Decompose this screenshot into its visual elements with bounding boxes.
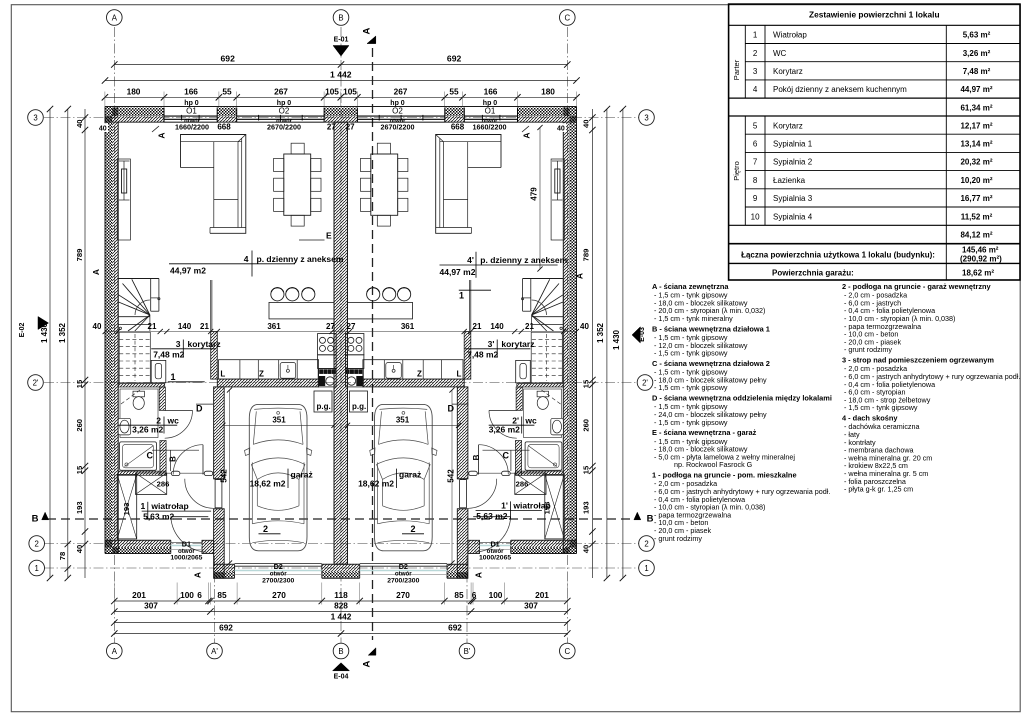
svg-text:O1: O1 [485, 106, 496, 115]
svg-text:garaż: garaż [291, 469, 313, 479]
svg-text:260: 260 [75, 419, 84, 432]
svg-text:1000/2065: 1000/2065 [479, 555, 511, 562]
svg-text:Piętro: Piętro [732, 161, 741, 181]
svg-text:61,34 m²: 61,34 m² [960, 103, 992, 112]
svg-text:5: 5 [753, 121, 758, 130]
svg-text:2': 2' [33, 378, 39, 387]
svg-text:166: 166 [484, 87, 498, 97]
svg-text:1000/2065: 1000/2065 [170, 555, 202, 562]
svg-text:40: 40 [99, 125, 107, 132]
svg-text:Z: Z [259, 369, 264, 378]
svg-text:201: 201 [132, 590, 146, 600]
svg-text:6: 6 [197, 590, 202, 600]
svg-text:4': 4' [467, 255, 474, 265]
svg-text:40: 40 [75, 545, 84, 553]
svg-text:B': B' [464, 647, 471, 656]
svg-text:E-01: E-01 [334, 37, 349, 44]
svg-text:2670/2200: 2670/2200 [381, 123, 415, 132]
svg-text:1: 1 [459, 291, 464, 301]
svg-text:E: E [326, 231, 332, 241]
svg-text:85: 85 [217, 590, 227, 600]
svg-text:201: 201 [535, 590, 549, 600]
svg-text:O2: O2 [279, 106, 290, 115]
svg-text:267: 267 [394, 87, 408, 97]
svg-text:1 442: 1 442 [330, 70, 352, 80]
svg-text:789: 789 [582, 249, 591, 262]
svg-text:44,97 m²: 44,97 m² [960, 85, 992, 94]
svg-text:korytarz: korytarz [188, 339, 221, 349]
svg-text:1: 1 [644, 564, 648, 573]
svg-text:789: 789 [75, 249, 84, 262]
svg-text:85: 85 [454, 590, 464, 600]
svg-text:3,26 m2: 3,26 m2 [489, 425, 520, 435]
svg-text:692: 692 [221, 54, 236, 64]
svg-text:193: 193 [543, 502, 552, 515]
svg-text:wc: wc [167, 415, 180, 425]
svg-text:- grunt rodzimy: - grunt rodzimy [654, 534, 702, 543]
svg-text:193: 193 [122, 503, 131, 516]
svg-text:otwór: otwór [395, 571, 412, 578]
svg-text:B: B [647, 514, 654, 525]
svg-text:193: 193 [582, 501, 591, 514]
svg-text:Sypialnia 2: Sypialnia 2 [773, 158, 813, 167]
svg-text:Sypialnia 1: Sypialnia 1 [773, 140, 813, 149]
svg-text:10: 10 [751, 212, 760, 221]
svg-text:2670/2200: 2670/2200 [267, 123, 301, 132]
svg-text:27: 27 [346, 123, 355, 132]
svg-text:L: L [220, 369, 225, 378]
svg-text:WC: WC [773, 49, 787, 58]
svg-text:Wiatrołap: Wiatrołap [773, 31, 807, 40]
svg-text:wc: wc [524, 415, 537, 425]
svg-text:3: 3 [644, 113, 648, 122]
svg-text:12,17 m²: 12,17 m² [960, 121, 992, 130]
svg-text:1: 1 [170, 372, 175, 382]
svg-text:15: 15 [75, 465, 84, 474]
svg-text:542: 542 [220, 469, 229, 483]
svg-text:2700/2300: 2700/2300 [262, 578, 294, 585]
svg-text:10,20 m²: 10,20 m² [960, 176, 992, 185]
svg-text:40: 40 [582, 119, 591, 127]
svg-text:p.g.: p.g. [317, 402, 331, 411]
svg-text:1 352: 1 352 [596, 322, 605, 343]
svg-text:44,97 m2: 44,97 m2 [170, 266, 206, 276]
svg-text:7,48 m2: 7,48 m2 [467, 349, 498, 359]
svg-text:A: A [193, 572, 203, 578]
svg-text:6: 6 [472, 590, 477, 600]
svg-text:105: 105 [343, 87, 357, 97]
svg-text:84,12 m²: 84,12 m² [960, 231, 992, 240]
svg-text:Zestawienie powierzchni 1 loka: Zestawienie powierzchni 1 lokalu [809, 10, 939, 20]
svg-text:1: 1 [35, 564, 39, 573]
svg-text:307: 307 [144, 601, 158, 611]
svg-text:351: 351 [396, 416, 410, 425]
svg-text:118: 118 [334, 590, 348, 600]
svg-text:A: A [474, 572, 484, 578]
svg-text:- 1,5 cm - tynk mineralny: - 1,5 cm - tynk mineralny [654, 314, 733, 323]
svg-text:1: 1 [140, 501, 145, 511]
svg-text:B: B [472, 454, 481, 460]
svg-text:B: B [32, 514, 39, 525]
svg-text:5,63 m2: 5,63 m2 [143, 512, 174, 522]
svg-text:3': 3' [488, 339, 495, 349]
svg-text:garaż: garaż [399, 469, 421, 479]
svg-text:166: 166 [184, 87, 198, 97]
svg-text:- 1,5 cm - tynk gipsowy: - 1,5 cm - tynk gipsowy [654, 383, 728, 392]
svg-text:B: B [338, 13, 343, 22]
svg-text:Powierzchnia garażu:: Powierzchnia garażu: [772, 268, 854, 277]
svg-text:A: A [112, 13, 118, 22]
svg-text:21: 21 [200, 322, 209, 331]
svg-text:A: A [91, 269, 101, 275]
svg-text:A: A [157, 132, 167, 138]
svg-text:5,63 m²: 5,63 m² [963, 31, 991, 40]
svg-text:40: 40 [580, 322, 589, 331]
svg-text:15: 15 [582, 465, 591, 474]
svg-text:- płyta g-k gr. 1,25 cm: - płyta g-k gr. 1,25 cm [844, 485, 913, 494]
svg-text:7,48 m²: 7,48 m² [963, 67, 991, 76]
svg-text:Parter: Parter [732, 59, 741, 80]
svg-text:40: 40 [582, 545, 591, 553]
svg-text:2: 2 [753, 49, 758, 58]
svg-text:C: C [147, 450, 154, 460]
svg-text:20,32 m²: 20,32 m² [960, 158, 992, 167]
svg-text:3,26 m²: 3,26 m² [963, 49, 991, 58]
svg-text:140: 140 [178, 322, 192, 331]
svg-text:55: 55 [449, 87, 459, 97]
svg-text:44,97 m2: 44,97 m2 [440, 267, 476, 277]
svg-text:C: C [564, 13, 570, 22]
svg-text:105: 105 [325, 87, 339, 97]
svg-text:L: L [457, 369, 462, 378]
svg-text:wiatrołap: wiatrołap [150, 501, 188, 511]
svg-text:Sypialnia 4: Sypialnia 4 [773, 212, 813, 221]
svg-text:Sypialnia 3: Sypialnia 3 [773, 194, 813, 203]
svg-text:78: 78 [58, 552, 67, 560]
svg-text:3: 3 [753, 67, 758, 76]
svg-text:- 1,5 cm - tynk gipsowy: - 1,5 cm - tynk gipsowy [844, 403, 918, 412]
svg-text:2': 2' [642, 378, 648, 387]
svg-text:27: 27 [327, 123, 336, 132]
svg-text:16,77 m²: 16,77 m² [960, 194, 992, 203]
svg-text:140: 140 [490, 322, 504, 331]
svg-text:270: 270 [396, 590, 410, 600]
svg-text:Łazienka: Łazienka [773, 176, 806, 185]
svg-text:p.g.: p.g. [352, 402, 366, 411]
svg-text:1 442: 1 442 [331, 612, 352, 622]
svg-text:4: 4 [244, 254, 249, 264]
svg-text:p. dzienny z aneksem: p. dzienny z aneksem [257, 254, 344, 264]
svg-text:E-02: E-02 [19, 323, 26, 338]
svg-text:270: 270 [272, 590, 286, 600]
svg-text:100: 100 [489, 590, 503, 600]
svg-text:- 1,5 cm - tynk gipsowy: - 1,5 cm - tynk gipsowy [654, 418, 728, 427]
svg-text:1 352: 1 352 [58, 322, 67, 343]
svg-text:351: 351 [272, 416, 286, 425]
svg-text:260: 260 [582, 419, 591, 432]
svg-text:1: 1 [753, 31, 758, 40]
svg-text:11,52 m²: 11,52 m² [961, 212, 993, 221]
svg-text:193: 193 [75, 501, 84, 514]
svg-text:A': A' [211, 647, 218, 656]
svg-text:5,63 m2: 5,63 m2 [476, 511, 507, 521]
svg-text:2: 2 [263, 524, 268, 534]
svg-text:2700/2300: 2700/2300 [387, 578, 419, 585]
svg-text:1 430: 1 430 [612, 329, 621, 350]
svg-text:15: 15 [582, 379, 591, 388]
svg-text:828: 828 [334, 601, 348, 611]
svg-text:A: A [112, 647, 118, 656]
svg-text:18,62 m²: 18,62 m² [962, 268, 994, 277]
svg-text:Łączna powierzchnia użytkowa 1: Łączna powierzchnia użytkowa 1 lokalu (b… [741, 251, 935, 260]
svg-text:2: 2 [644, 539, 648, 548]
svg-text:6: 6 [753, 140, 758, 149]
svg-text:692: 692 [447, 54, 462, 64]
svg-text:8: 8 [753, 176, 758, 185]
svg-text:B: B [338, 647, 343, 656]
svg-text:A: A [575, 273, 585, 279]
svg-text:18,62 m2: 18,62 m2 [250, 479, 286, 489]
svg-text:13,14 m²: 13,14 m² [960, 140, 992, 149]
svg-text:- 1,5 cm - tynk gipsowy: - 1,5 cm - tynk gipsowy [654, 349, 728, 358]
svg-text:1660/2200: 1660/2200 [175, 123, 209, 132]
svg-text:1660/2200: 1660/2200 [473, 123, 507, 132]
svg-text:korytarz: korytarz [501, 339, 534, 349]
svg-text:2: 2 [35, 539, 39, 548]
svg-text:21: 21 [525, 322, 534, 331]
svg-text:21: 21 [148, 322, 157, 331]
svg-text:7: 7 [753, 158, 758, 167]
svg-text:B: B [169, 456, 178, 462]
svg-text:D: D [196, 403, 203, 413]
svg-text:668: 668 [451, 123, 465, 132]
svg-text:286: 286 [516, 480, 529, 489]
svg-text:1': 1' [501, 501, 508, 511]
svg-text:Pokój dzienny z aneksem kuchen: Pokój dzienny z aneksem kuchennym [773, 85, 907, 94]
svg-text:542: 542 [447, 469, 456, 483]
svg-text:267: 267 [274, 87, 288, 97]
svg-text:692: 692 [219, 623, 233, 633]
svg-text:C: C [503, 450, 510, 460]
svg-text:p. dzienny z aneksem: p. dzienny z aneksem [480, 255, 567, 265]
svg-text:3,26 m2: 3,26 m2 [132, 425, 163, 435]
svg-text:2: 2 [410, 524, 415, 534]
svg-text:40: 40 [93, 322, 102, 331]
svg-text:7,48 m2: 7,48 m2 [153, 349, 184, 359]
svg-text:18,62 m2: 18,62 m2 [358, 479, 394, 489]
svg-text:np. Rockwool Fasrock G: np. Rockwool Fasrock G [654, 460, 753, 469]
svg-text:A: A [362, 27, 373, 34]
svg-text:O1: O1 [186, 106, 197, 115]
svg-text:Z: Z [417, 369, 422, 378]
svg-text:307: 307 [524, 601, 538, 611]
svg-text:- grunt rodzimy: - grunt rodzimy [844, 345, 892, 354]
svg-text:3: 3 [33, 113, 37, 122]
svg-text:9: 9 [753, 194, 758, 203]
svg-text:180: 180 [541, 87, 555, 97]
svg-text:O2: O2 [392, 106, 403, 115]
svg-text:15: 15 [75, 379, 84, 388]
svg-text:1 430: 1 430 [40, 322, 49, 343]
svg-text:100: 100 [180, 590, 194, 600]
svg-text:40: 40 [557, 125, 565, 132]
svg-text:Korytarz: Korytarz [773, 67, 803, 76]
svg-text:27: 27 [347, 322, 356, 331]
svg-text:(290,92 m²): (290,92 m²) [960, 254, 1002, 263]
svg-text:668: 668 [217, 123, 231, 132]
svg-text:145,46 m²: 145,46 m² [962, 245, 999, 254]
svg-text:D: D [448, 403, 455, 413]
svg-text:A: A [522, 132, 532, 138]
svg-text:4: 4 [753, 85, 758, 94]
svg-text:E-04: E-04 [334, 674, 349, 681]
svg-text:3: 3 [176, 339, 181, 349]
svg-text:40: 40 [75, 119, 84, 127]
svg-text:27: 27 [326, 322, 335, 331]
svg-text:otwór: otwór [270, 571, 287, 578]
svg-text:A: A [362, 660, 373, 667]
svg-text:180: 180 [127, 87, 141, 97]
svg-text:479: 479 [530, 187, 539, 201]
svg-text:55: 55 [222, 87, 232, 97]
svg-text:361: 361 [401, 322, 415, 331]
svg-text:21: 21 [473, 322, 482, 331]
svg-text:Korytarz: Korytarz [773, 121, 803, 130]
svg-text:286: 286 [157, 480, 170, 489]
svg-text:692: 692 [448, 623, 462, 633]
svg-text:C: C [564, 647, 570, 656]
svg-text:361: 361 [267, 322, 281, 331]
